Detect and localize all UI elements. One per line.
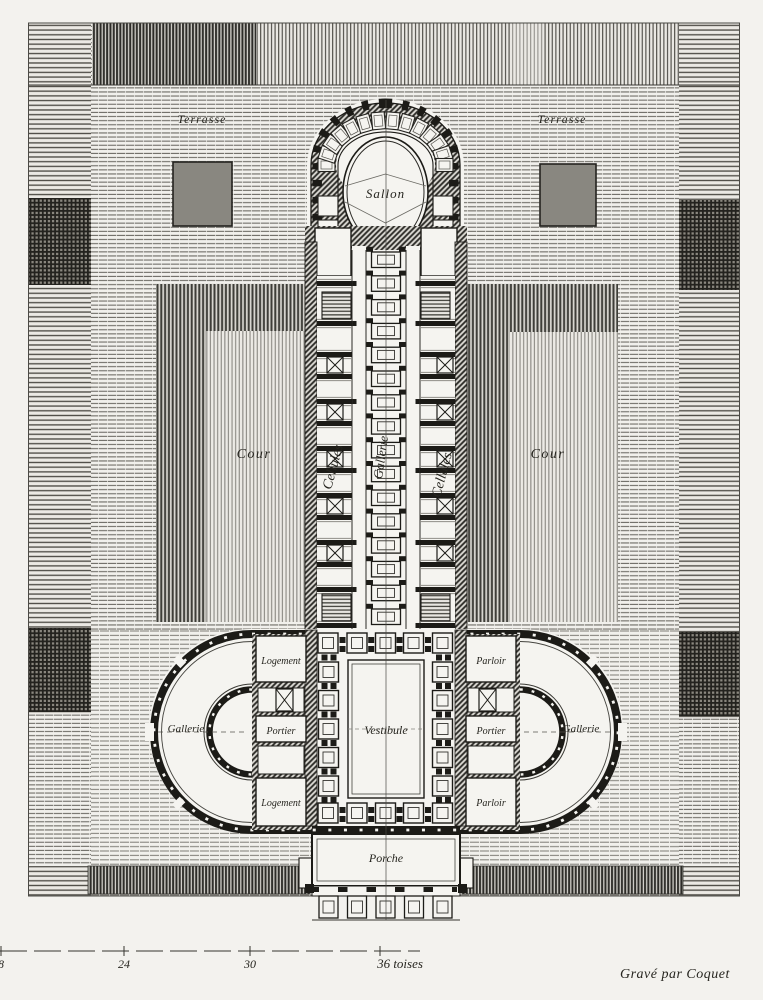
- svg-text:24: 24: [118, 957, 130, 971]
- svg-text:Parloir: Parloir: [475, 798, 506, 809]
- svg-text:36 toises: 36 toises: [376, 956, 423, 971]
- svg-text:8: 8: [0, 957, 4, 971]
- svg-text:30: 30: [243, 957, 256, 971]
- svg-text:Logement: Logement: [260, 656, 301, 667]
- svg-text:Gallerie: Gallerie: [168, 723, 205, 735]
- svg-text:Sallon: Sallon: [366, 186, 405, 201]
- svg-text:Terrasse: Terrasse: [178, 112, 227, 126]
- svg-text:Logement: Logement: [260, 798, 301, 809]
- svg-text:Gallerie: Gallerie: [563, 723, 600, 735]
- svg-text:Cour: Cour: [531, 447, 566, 462]
- svg-text:Portier: Portier: [266, 726, 296, 737]
- svg-text:Portier: Portier: [476, 726, 506, 737]
- svg-text:Parloir: Parloir: [475, 656, 506, 667]
- svg-text:Gravé par Coquet: Gravé par Coquet: [620, 967, 730, 982]
- svg-text:Terrasse: Terrasse: [538, 112, 587, 126]
- svg-text:Cour: Cour: [237, 447, 272, 462]
